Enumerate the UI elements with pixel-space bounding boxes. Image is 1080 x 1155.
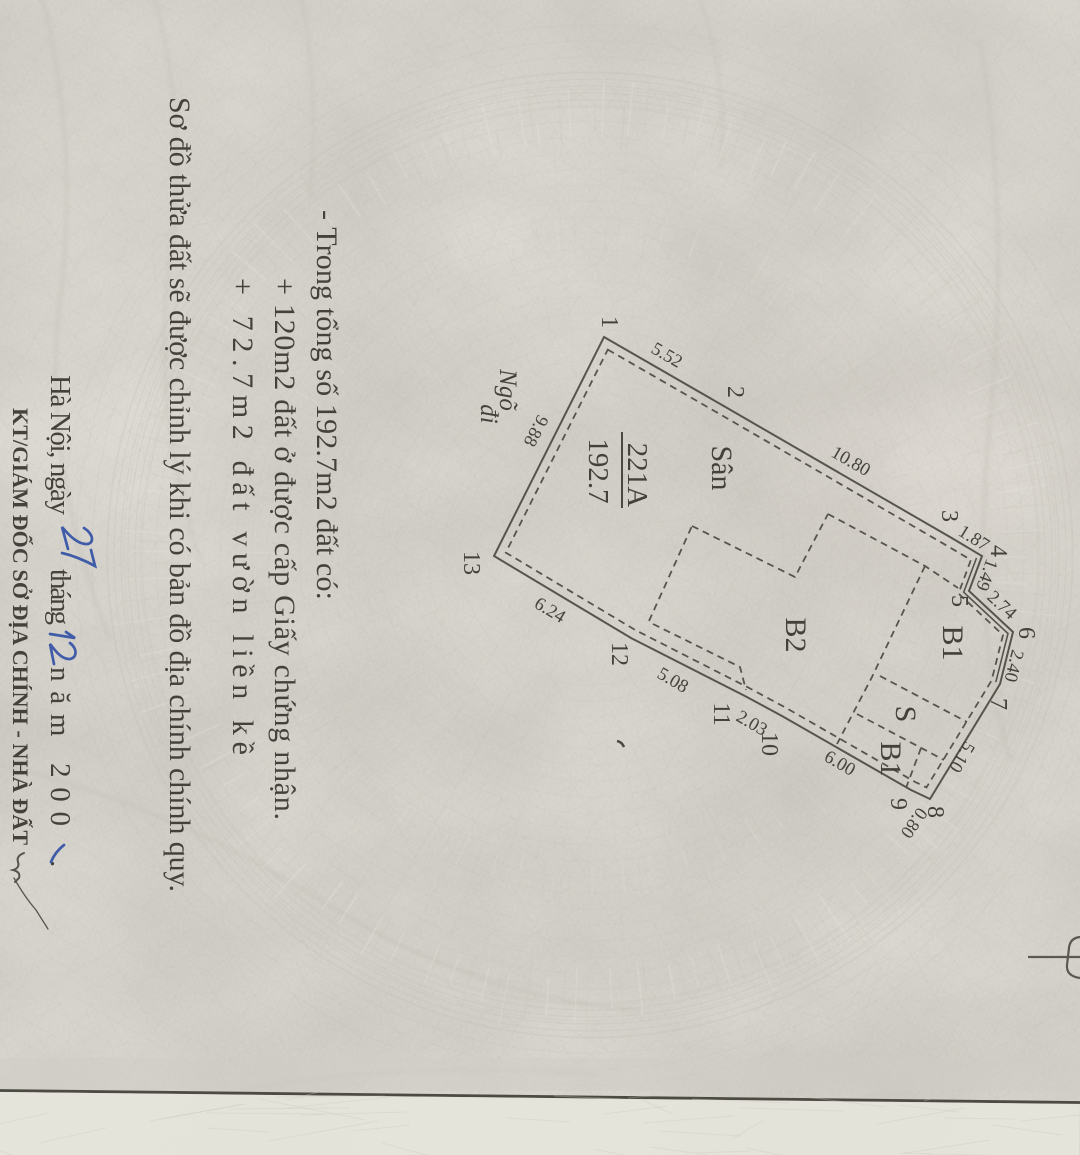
svg-text:B2: B2 bbox=[779, 617, 812, 652]
svg-text:192.7: 192.7 bbox=[582, 438, 614, 503]
svg-text:12: 12 bbox=[606, 642, 632, 666]
svg-text:13: 13 bbox=[458, 551, 484, 575]
svg-text:7: 7 bbox=[985, 698, 1011, 710]
svg-text:4: 4 bbox=[985, 545, 1011, 557]
svg-text:6: 6 bbox=[1013, 627, 1039, 639]
svg-text:.: . bbox=[44, 860, 76, 867]
svg-text:Hà Nội, ngày: Hà Nội, ngày bbox=[44, 375, 76, 516]
svg-text:1: 1 bbox=[596, 316, 622, 328]
svg-text:đi: đi bbox=[475, 404, 502, 424]
svg-text:KT/GIÁM ĐỐC SỞ ĐỊA CHÍNH - NHÀ: KT/GIÁM ĐỐC SỞ ĐỊA CHÍNH - NHÀ ĐẤT bbox=[8, 408, 33, 845]
svg-text:B1: B1 bbox=[936, 625, 969, 660]
svg-text:11: 11 bbox=[708, 702, 734, 725]
svg-text:tháng: tháng bbox=[44, 569, 76, 625]
svg-text:221A: 221A bbox=[621, 443, 653, 508]
svg-text:5: 5 bbox=[946, 595, 972, 607]
svg-text:2: 2 bbox=[722, 386, 748, 398]
svg-text:+ 72.7m2 đất vườn liền kề: + 72.7m2 đất vườn liền kề bbox=[226, 278, 259, 755]
svg-text:B1: B1 bbox=[874, 741, 907, 776]
svg-text:3: 3 bbox=[936, 510, 962, 522]
svg-text:Sơ đồ thửa đất sẽ được chỉnh l: Sơ đồ thửa đất sẽ được chỉnh lý khi có b… bbox=[163, 97, 196, 892]
svg-text:+ 120m2 đất ở được cấp Giấy ch: + 120m2 đất ở được cấp Giấy chứng nhận. bbox=[268, 278, 301, 820]
svg-text:- Trong tổng số 192.7m2 đất có: - Trong tổng số 192.7m2 đất có: bbox=[310, 210, 343, 600]
svg-text:Sân: Sân bbox=[705, 446, 738, 491]
svg-text:9: 9 bbox=[885, 798, 911, 810]
svg-text:S: S bbox=[889, 706, 922, 723]
